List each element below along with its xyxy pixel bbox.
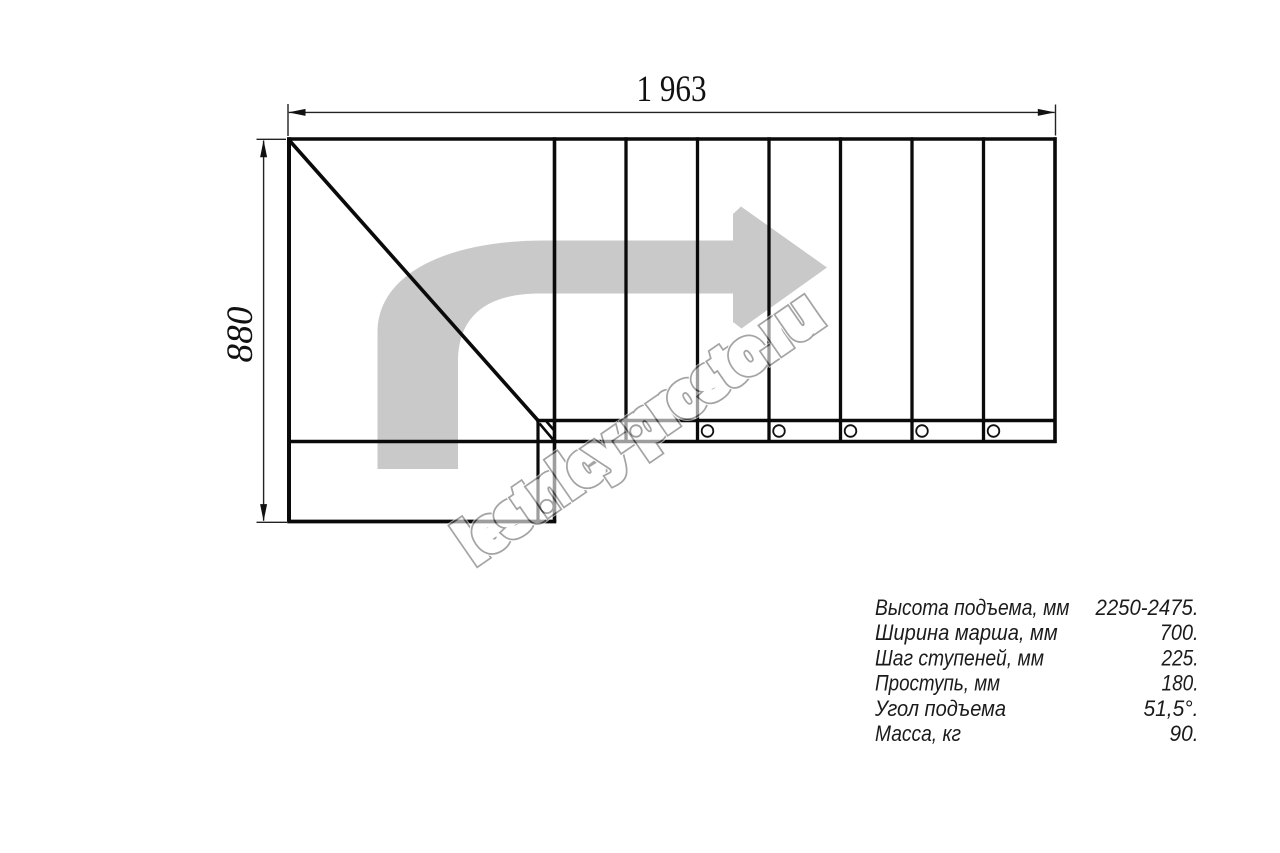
svg-text:225.: 225. [1161, 645, 1199, 670]
svg-text:880: 880 [220, 306, 261, 363]
svg-text:Проступь, мм: Проступь, мм [875, 671, 1000, 696]
svg-text:Масса, кг: Масса, кг [875, 721, 961, 746]
svg-text:700.: 700. [1160, 620, 1199, 645]
svg-text:Ширина марша, мм: Ширина марша, мм [875, 620, 1058, 645]
svg-text:Высота подъема, мм: Высота подъема, мм [875, 595, 1070, 620]
svg-text:180.: 180. [1162, 671, 1199, 696]
svg-text:2250-2475.: 2250-2475. [1095, 595, 1199, 620]
svg-text:Угол подъема: Угол подъема [874, 696, 1006, 721]
svg-text:Шаг ступеней, мм: Шаг ступеней, мм [875, 645, 1044, 670]
svg-text:90.: 90. [1170, 721, 1199, 746]
svg-text:1 963: 1 963 [637, 69, 707, 110]
svg-text:51,5°.: 51,5°. [1144, 696, 1199, 721]
